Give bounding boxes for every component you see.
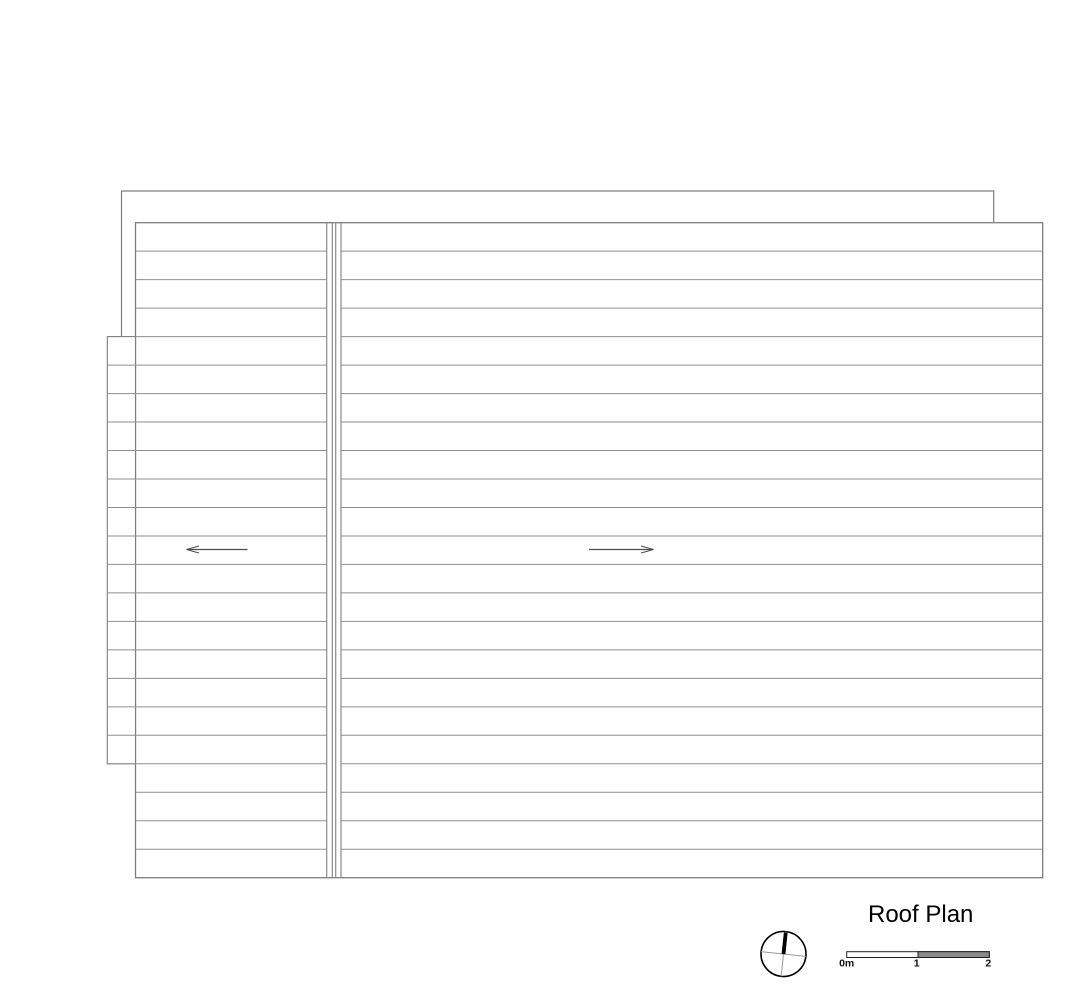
- plan-layer: [107, 191, 1042, 878]
- main-roof-outline: [136, 223, 1043, 878]
- scale-label-2: 2: [985, 958, 991, 970]
- drawing-title: Roof Plan: [868, 901, 973, 928]
- north-arrow-group: [759, 929, 808, 978]
- scale-bar: 0m12: [839, 952, 991, 970]
- drawing-sheet: Roof Plan 0m12: [0, 0, 1087, 1000]
- compass-north-bar: [784, 933, 786, 954]
- north-arrow-icon: [759, 929, 808, 978]
- scale-label-0m: 0m: [839, 958, 854, 970]
- scale-bar-filled-half: [918, 952, 989, 958]
- scale-label-1: 1: [914, 958, 920, 970]
- left-overhang-outline: [107, 337, 135, 764]
- roof-plan-drawing: Roof Plan 0m12: [0, 0, 1087, 1000]
